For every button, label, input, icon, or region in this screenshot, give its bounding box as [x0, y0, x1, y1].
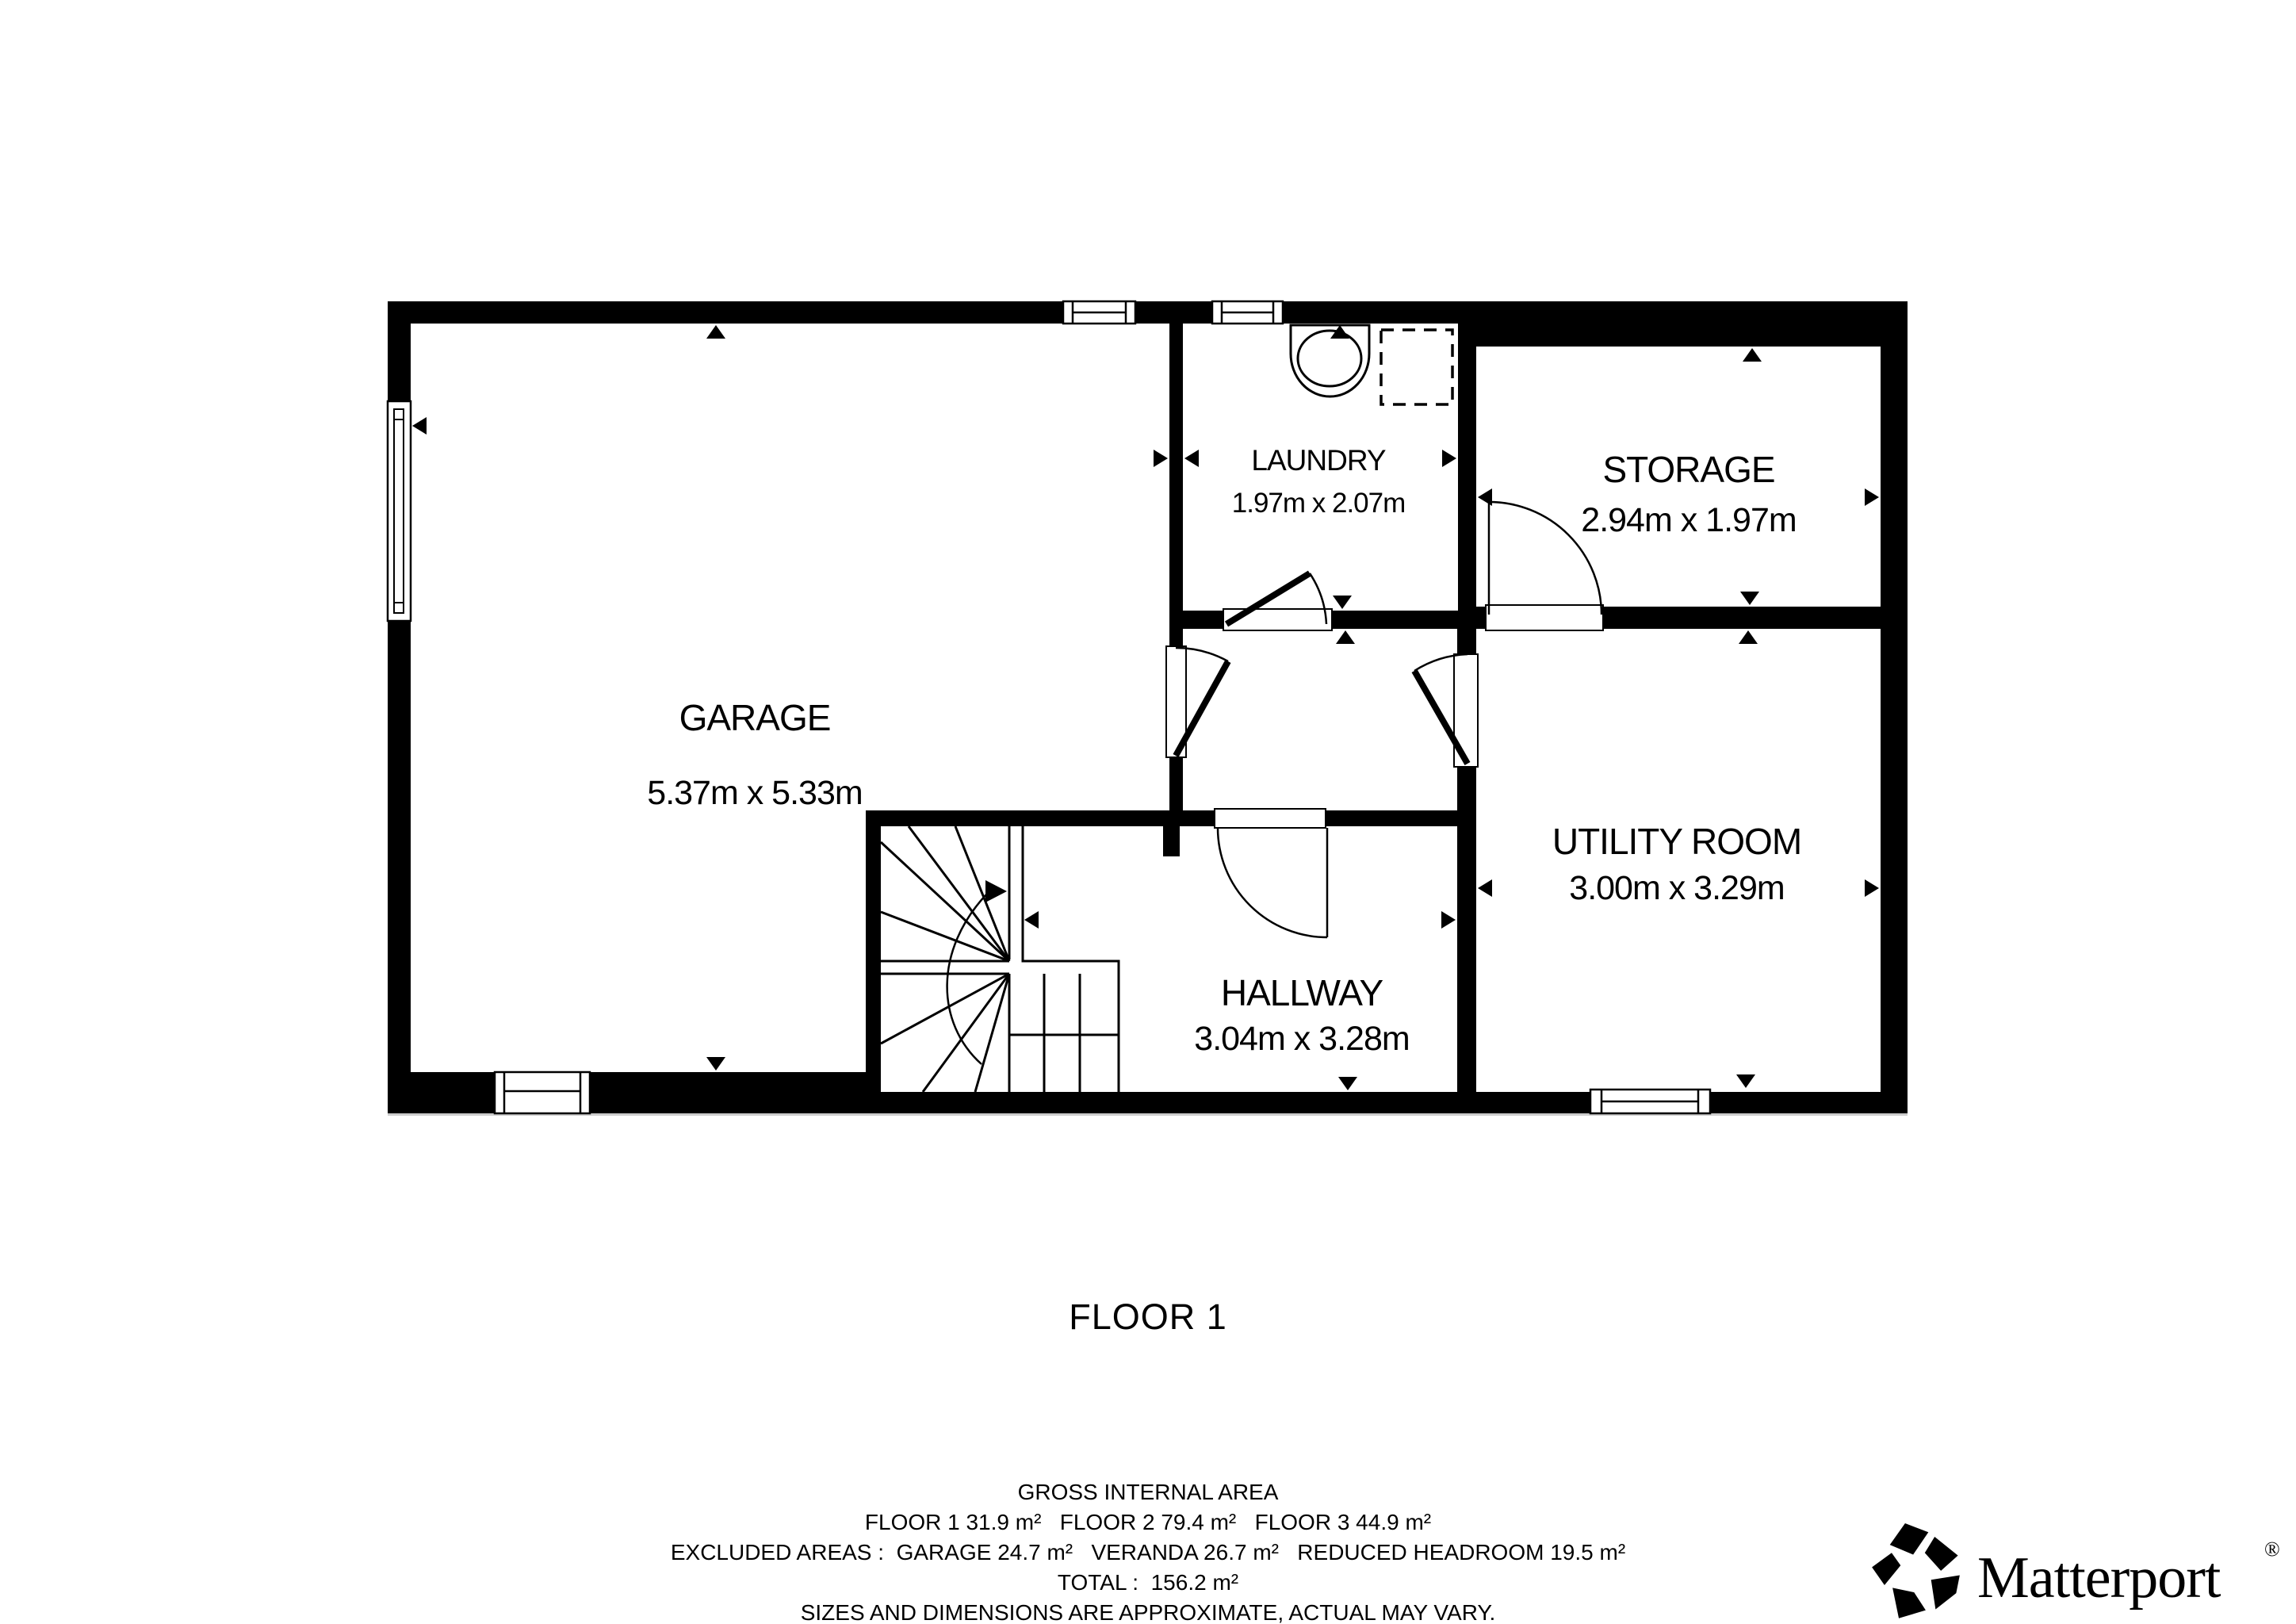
- garage-label: GARAGE: [679, 697, 831, 738]
- opening-vestibule-hallway: [1215, 809, 1326, 828]
- arrow-hallway-right: [1441, 911, 1456, 929]
- walls: [388, 301, 1908, 1116]
- hallway-label: HALLWAY: [1221, 972, 1383, 1013]
- sink-icon: [1291, 325, 1369, 396]
- arrow-hallway-up: [1336, 630, 1355, 644]
- garage-door-left: [388, 401, 411, 621]
- door-hallway: [1218, 828, 1327, 937]
- wall-top-storage: [1458, 301, 1908, 347]
- stairs-walkline: [947, 894, 987, 1064]
- room-labels: GARAGE 5.37m x 5.33m LAUNDRY 1.97m x 2.0…: [647, 444, 1801, 1058]
- arrow-garage-up: [706, 325, 725, 339]
- footer-excluded-areas: EXCLUDED AREAS : GARAGE 24.7 m² VERANDA …: [671, 1540, 1625, 1565]
- wall-bottom-garage: [388, 1072, 881, 1113]
- footer-disclaimer: SIZES AND DIMENSIONS ARE APPROXIMATE, AC…: [801, 1600, 1496, 1624]
- arrow-laundry-right: [1442, 450, 1456, 467]
- arrow-storage-up: [1743, 348, 1762, 362]
- hallway-dims: 3.04m x 3.28m: [1194, 1020, 1409, 1058]
- wall-hallway-top: [866, 810, 1476, 826]
- stairs-direction-arrow: [985, 880, 1007, 902]
- wall-top: [388, 301, 1476, 324]
- storage-dims: 2.94m x 1.97m: [1581, 501, 1796, 539]
- arrow-utility-up: [1739, 630, 1758, 644]
- wall-nib-hallway: [1163, 825, 1180, 856]
- window-bottom-utility: [1590, 1090, 1710, 1113]
- storage-label: STORAGE: [1602, 449, 1774, 490]
- fixtures: [1291, 325, 1452, 404]
- arrow-hallway-down: [1338, 1077, 1357, 1090]
- utility-dims: 3.00m x 3.29m: [1569, 869, 1784, 907]
- arrow-utility-down: [1736, 1074, 1755, 1088]
- opening-storage-utility: [1486, 605, 1603, 630]
- utility-label: UTILITY ROOM: [1552, 821, 1801, 862]
- footer-block: GROSS INTERNAL AREA FLOOR 1 31.9 m² FLOO…: [671, 1480, 1625, 1624]
- arrow-storage-down: [1740, 592, 1759, 605]
- floorplan-canvas: GARAGE 5.37m x 5.33m LAUNDRY 1.97m x 2.0…: [0, 0, 2296, 1624]
- window-top-garage: [1063, 301, 1135, 324]
- footer-gross-internal-area: GROSS INTERNAL AREA: [1018, 1480, 1279, 1504]
- appliance-dashed-box: [1381, 330, 1452, 404]
- floorplan-page: GARAGE 5.37m x 5.33m LAUNDRY 1.97m x 2.0…: [0, 0, 2296, 1624]
- garage-dims: 5.37m x 5.33m: [647, 774, 862, 812]
- floor-title: FLOOR 1: [1069, 1297, 1227, 1337]
- door-openings: [1166, 605, 1603, 828]
- doors: [1176, 502, 1601, 937]
- laundry-label: LAUNDRY: [1251, 444, 1385, 477]
- footer-floor-areas: FLOOR 1 31.9 m² FLOOR 2 79.4 m² FLOOR 3 …: [865, 1510, 1431, 1534]
- wall-laundry-storage: [1458, 301, 1476, 611]
- arrow-garage-right: [1154, 450, 1168, 467]
- stairs-winder-lower: [881, 974, 1009, 1092]
- registered-mark: ®: [2264, 1538, 2280, 1561]
- arrow-storage-left: [1478, 488, 1492, 506]
- windows: [388, 301, 1710, 1113]
- arrow-utility-right: [1865, 879, 1879, 897]
- arrow-storage-right: [1865, 488, 1879, 506]
- laundry-dims: 1.97m x 2.07m: [1232, 488, 1406, 519]
- wall-hallway-left: [866, 810, 881, 1092]
- matterport-icon: [1872, 1523, 1960, 1618]
- arrow-laundry-left: [1184, 450, 1199, 467]
- stairs-treads: [1009, 974, 1119, 1092]
- arrow-garage-left: [412, 417, 427, 435]
- arrow-laundry-down: [1333, 596, 1352, 609]
- arrow-garage-down: [706, 1057, 725, 1071]
- arrow-hallway-left: [1024, 911, 1039, 929]
- arrow-utility-left: [1478, 879, 1492, 897]
- dimension-arrows: [412, 325, 1879, 1090]
- window-bottom-garage: [495, 1072, 590, 1113]
- stairs: [881, 826, 1119, 1092]
- wall-bottom: [866, 1092, 1908, 1113]
- stairs-outline: [1023, 826, 1119, 1092]
- wall-right: [1881, 301, 1908, 1113]
- matterport-wordmark: Matterport: [1977, 1545, 2221, 1611]
- footer-total: TOTAL : 156.2 m²: [1058, 1570, 1238, 1595]
- window-top-laundry: [1212, 301, 1283, 324]
- matterport-logo: Matterport ®: [1872, 1523, 2280, 1618]
